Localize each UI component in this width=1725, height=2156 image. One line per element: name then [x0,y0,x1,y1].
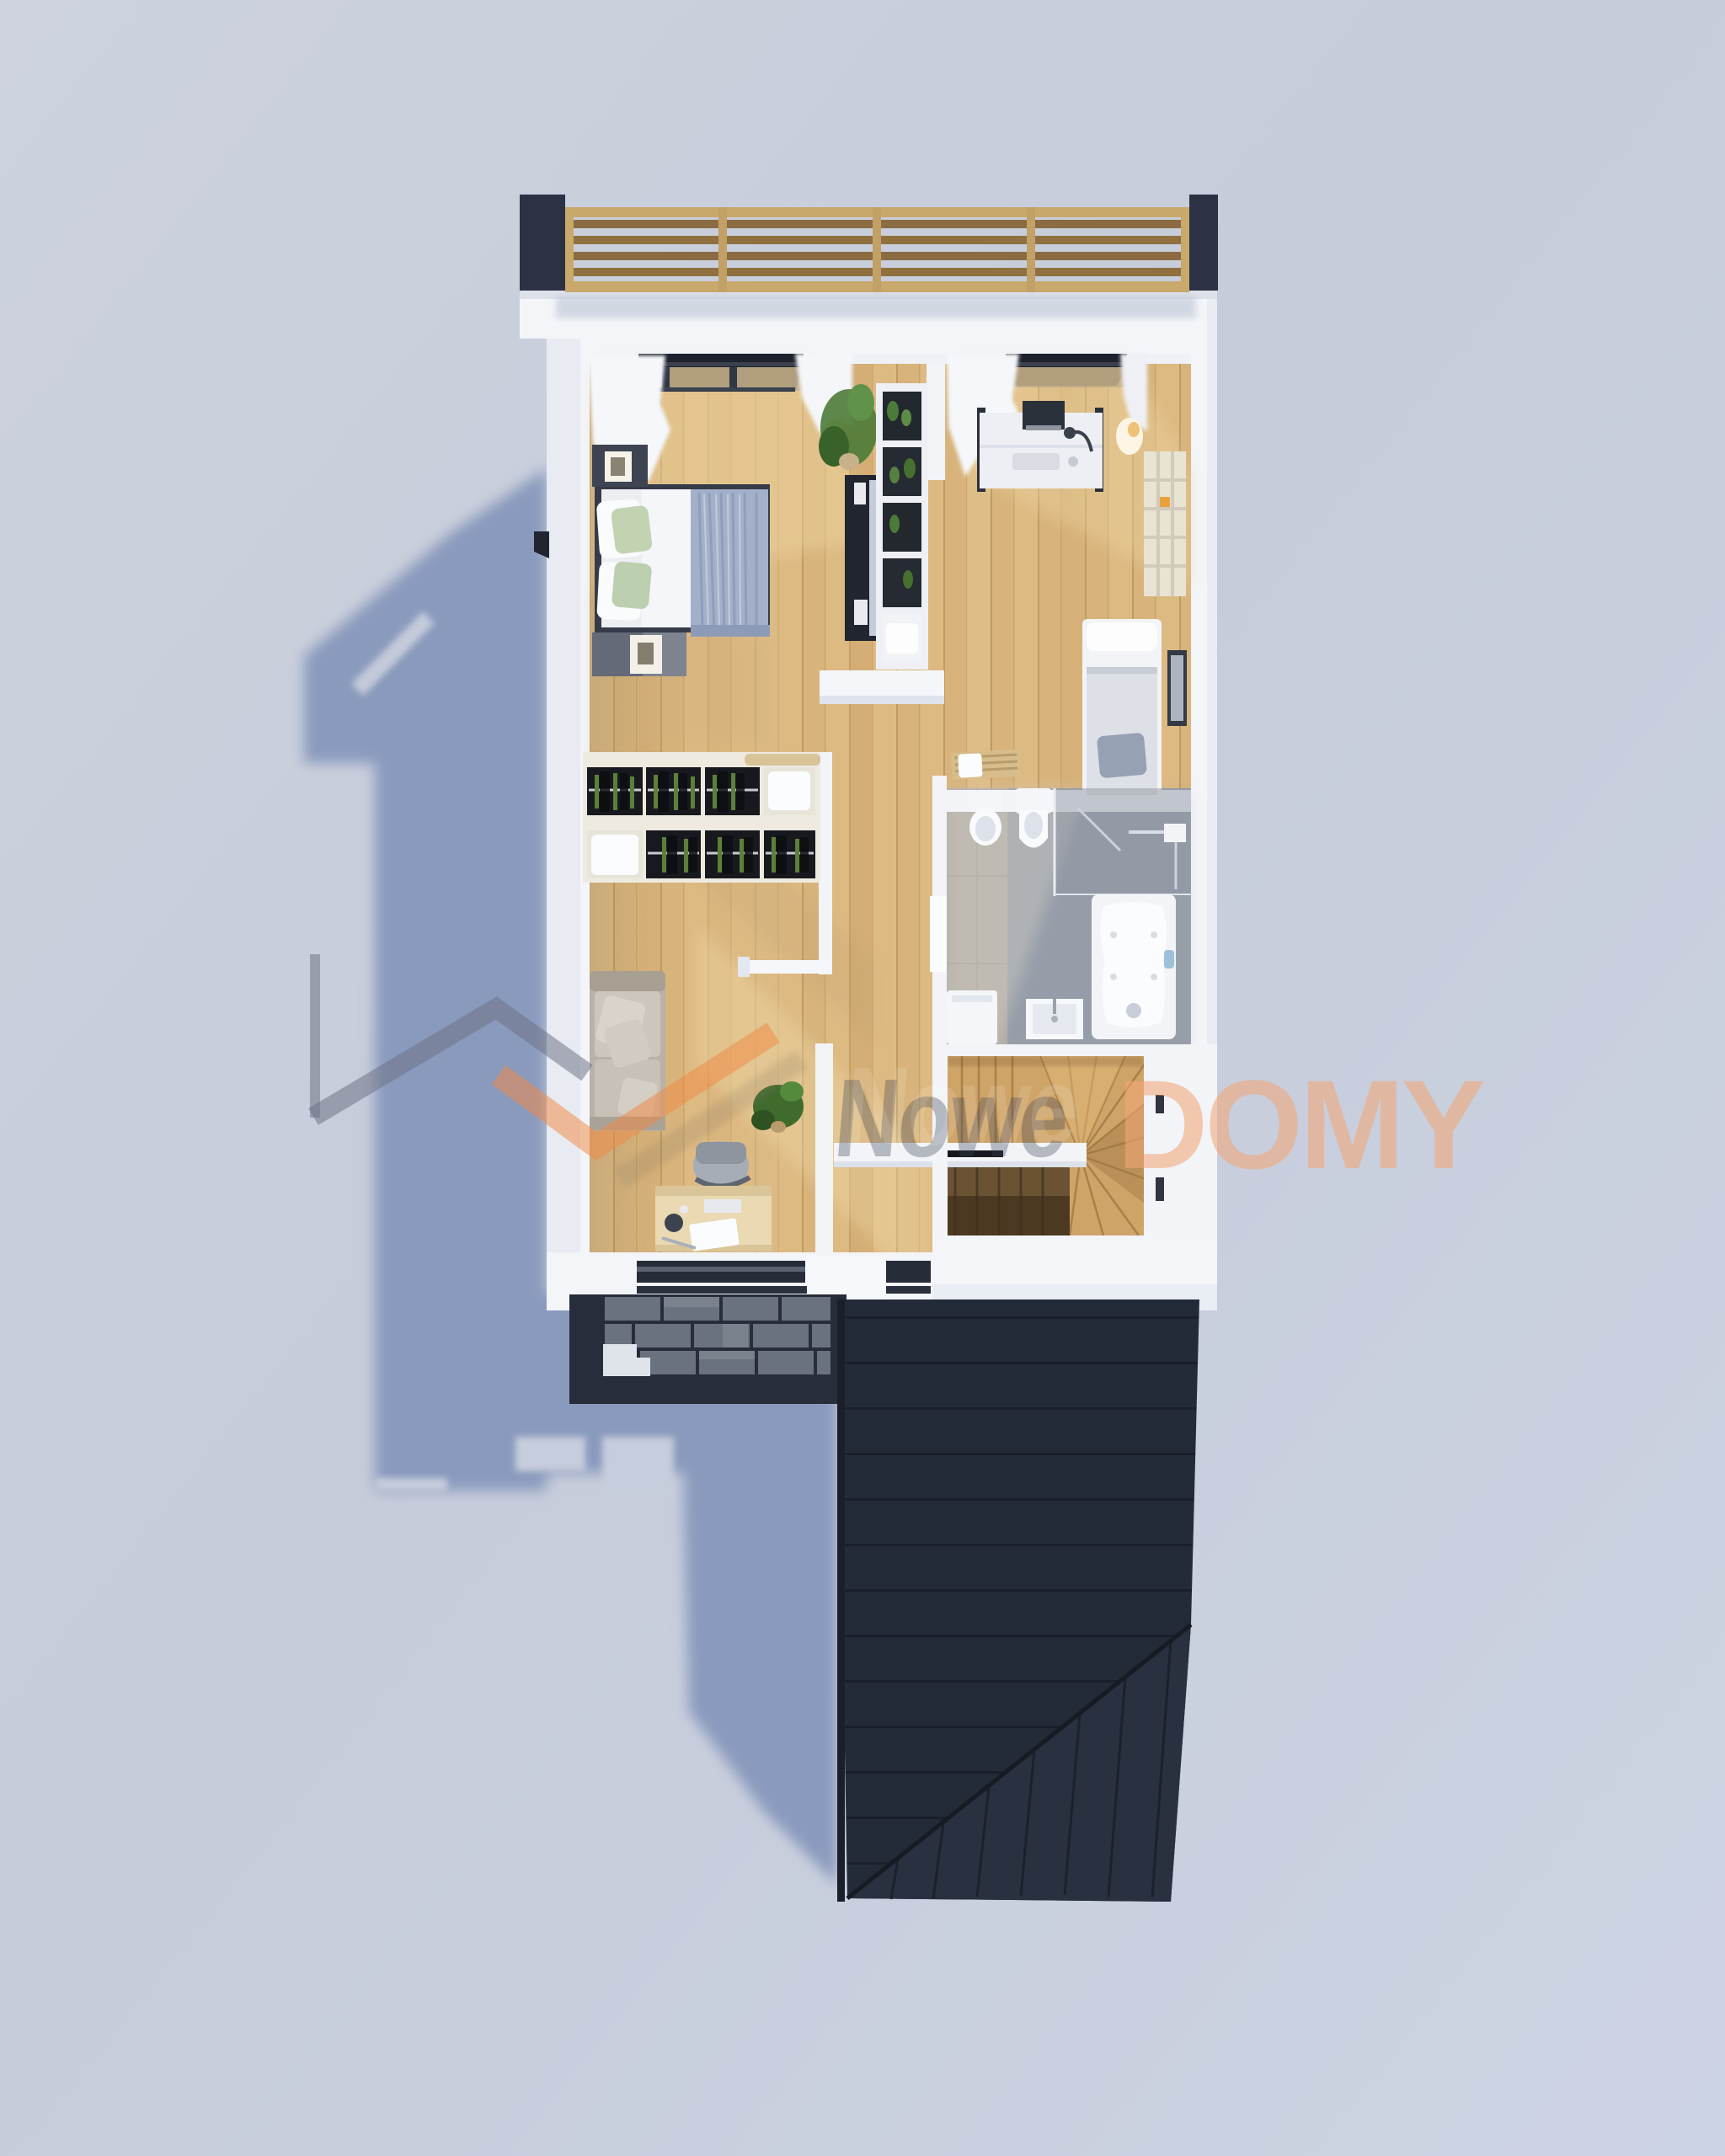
svg-text:Nowe: Nowe [841,1045,1083,1169]
svg-text:DOMY: DOMY [1117,1054,1484,1195]
